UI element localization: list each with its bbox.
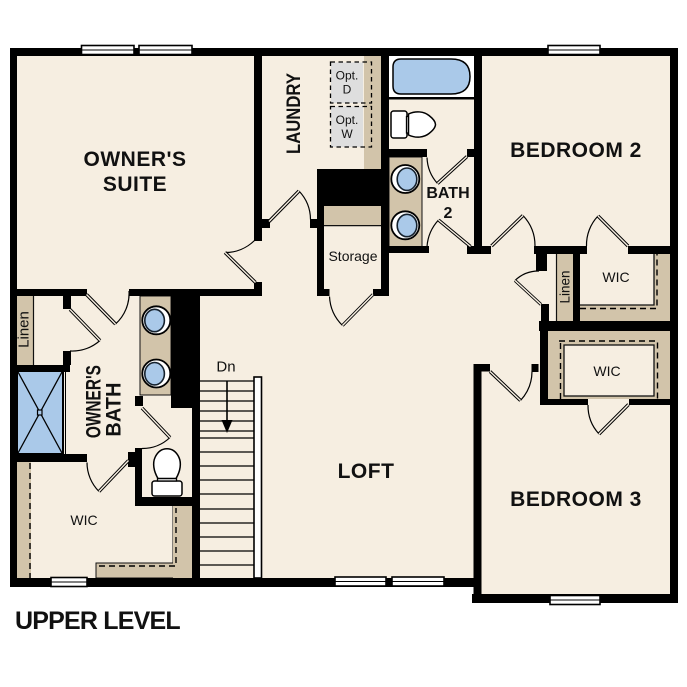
svg-text:Opt.: Opt. — [336, 69, 359, 83]
svg-text:Opt.: Opt. — [336, 113, 359, 127]
svg-text:W: W — [341, 127, 353, 141]
svg-text:LOFT: LOFT — [338, 460, 395, 483]
svg-text:WIC: WIC — [70, 512, 97, 528]
svg-text:Dn: Dn — [216, 359, 235, 376]
svg-text:BEDROOM 3: BEDROOM 3 — [510, 488, 642, 511]
svg-text:LAUNDRY: LAUNDRY — [284, 73, 305, 154]
svg-text:Linen: Linen — [558, 270, 573, 303]
svg-text:BEDROOM 2: BEDROOM 2 — [510, 139, 642, 162]
svg-text:UPPER LEVEL: UPPER LEVEL — [15, 607, 180, 635]
svg-text:Storage: Storage — [328, 248, 377, 264]
svg-text:BATH: BATH — [103, 383, 126, 437]
svg-text:BATH: BATH — [426, 185, 469, 202]
svg-text:OWNER'S: OWNER'S — [84, 148, 187, 171]
svg-text:WIC: WIC — [602, 269, 629, 285]
svg-text:WIC: WIC — [593, 363, 620, 379]
svg-text:SUITE: SUITE — [103, 173, 167, 196]
svg-text:2: 2 — [444, 205, 453, 222]
svg-text:Linen: Linen — [16, 311, 33, 348]
svg-text:D: D — [343, 83, 352, 97]
